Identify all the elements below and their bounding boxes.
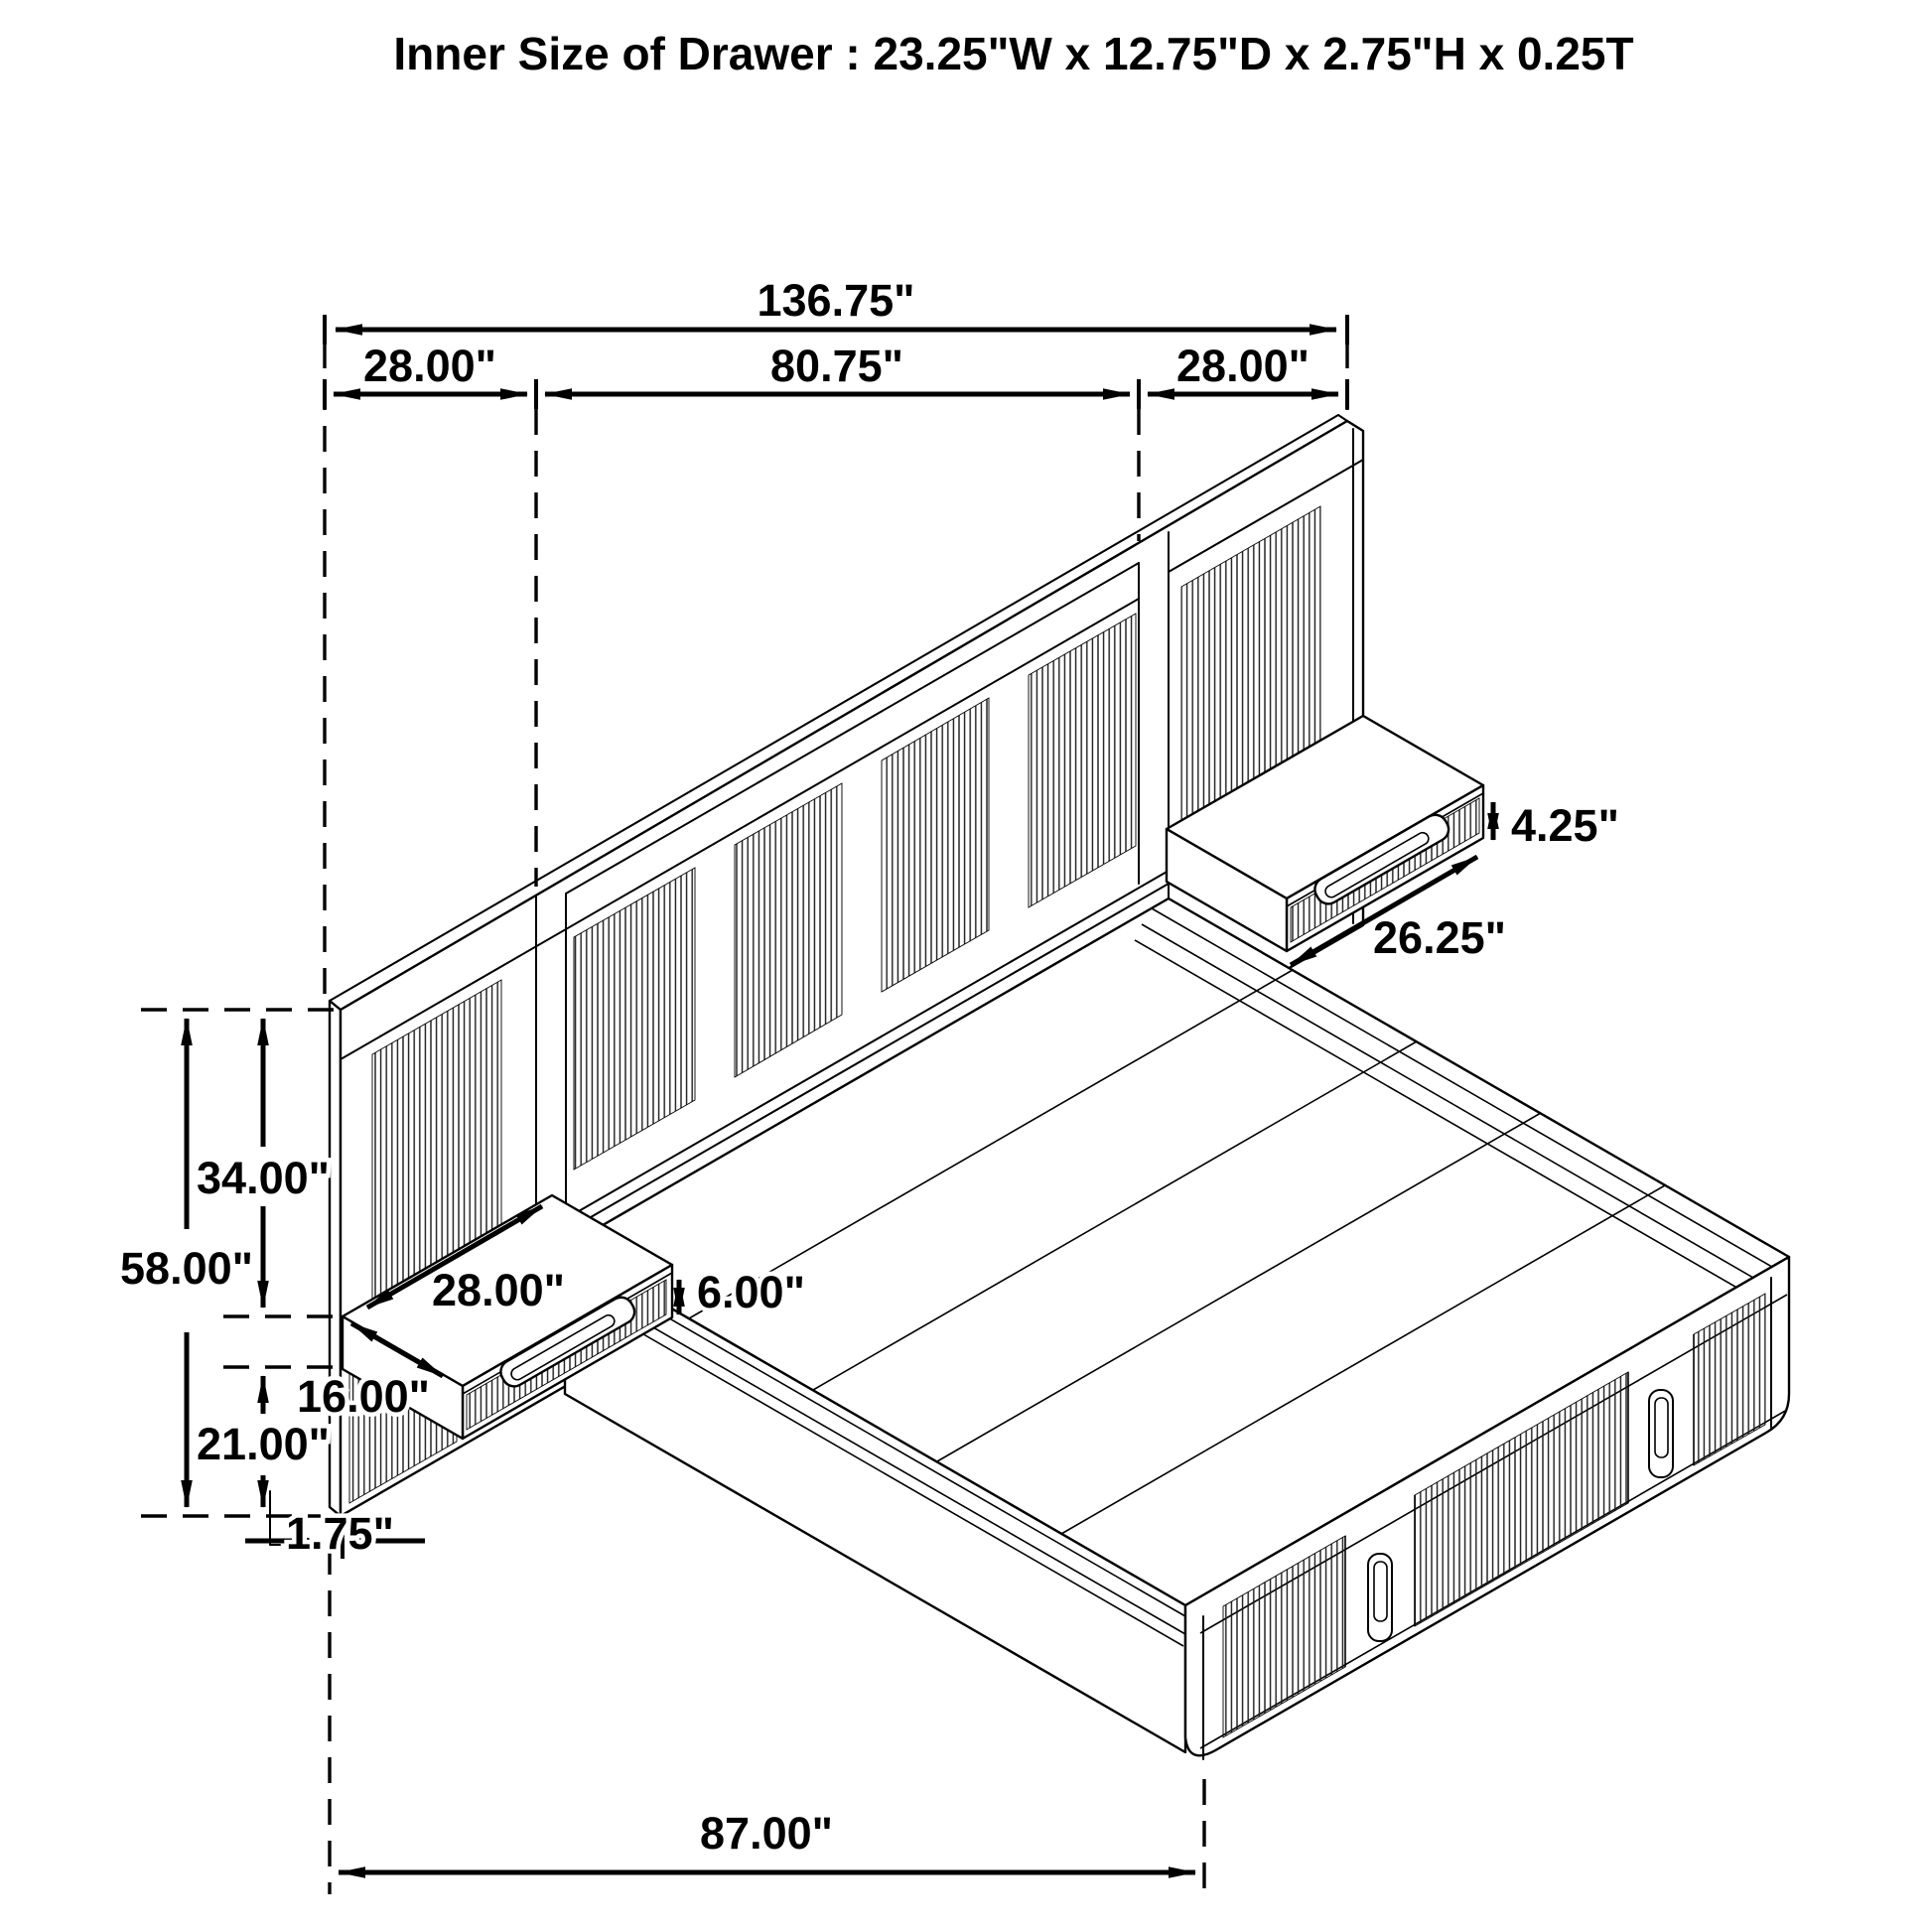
dim-center-label: 80.75" (770, 341, 903, 391)
dim-6-label: 6.00" (697, 1267, 805, 1317)
diagram-page: 136.75" 28.00" 80.75" 28.00" 34.00" 58.0… (0, 0, 1932, 1932)
dim-16-label: 16.00" (297, 1371, 430, 1422)
dim-right-wing-label: 28.00" (1176, 341, 1310, 391)
dim-headboard-width-label: 136.75" (758, 275, 915, 326)
dim-425-label: 4.25" (1511, 800, 1619, 851)
dim-28-shelf-label: 28.00" (432, 1265, 565, 1315)
dim-175-leader (270, 1491, 280, 1545)
dim-2625-label: 26.25" (1373, 912, 1506, 963)
bed-dimension-diagram: 136.75" 28.00" 80.75" 28.00" 34.00" 58.0… (0, 0, 1932, 1932)
page-title: Inner Size of Drawer : 23.25"W x 12.75"D… (393, 28, 1633, 79)
dim-21-label: 21.00" (197, 1419, 330, 1469)
dim-175-label: 1.75" (286, 1508, 394, 1559)
dim-34-label: 34.00" (197, 1153, 330, 1203)
dim-87-label: 87.00" (700, 1808, 833, 1859)
dim-58-label: 58.00" (120, 1243, 253, 1294)
dim-left-wing-label: 28.00" (363, 341, 496, 391)
headboard-left-edge-face (330, 1001, 341, 1516)
